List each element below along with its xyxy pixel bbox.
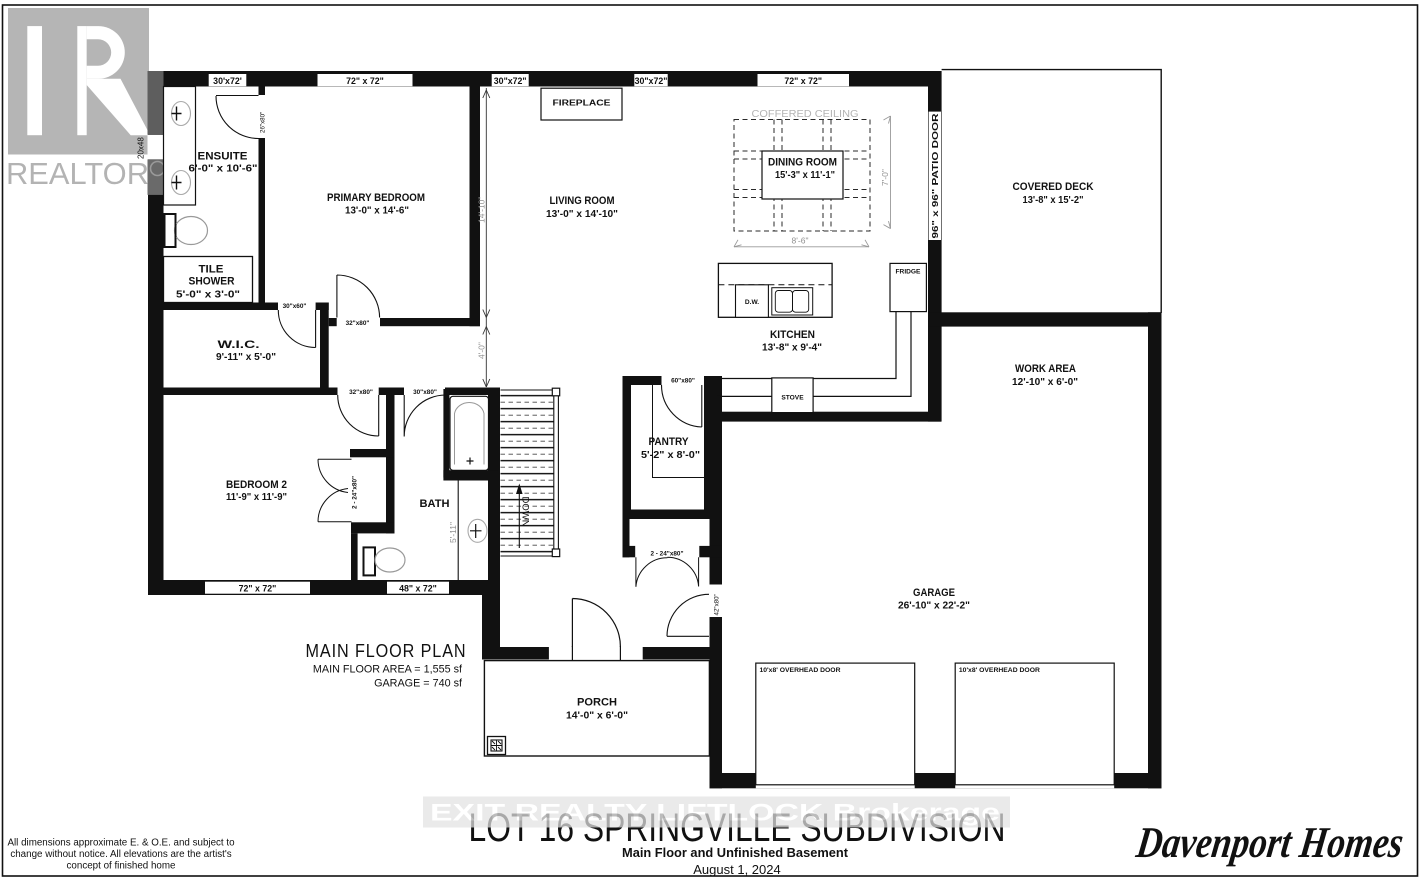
svg-text:13'-8" x 9'-4": 13'-8" x 9'-4" xyxy=(762,342,822,354)
svg-text:14'-10": 14'-10" xyxy=(477,197,487,223)
svg-text:10'x8' OVERHEAD DOOR: 10'x8' OVERHEAD DOOR xyxy=(959,667,1040,674)
svg-text:30"x72": 30"x72" xyxy=(494,76,527,86)
svg-text:COFFERED CEILING: COFFERED CEILING xyxy=(752,109,859,120)
svg-text:2 - 24"x80": 2 - 24"x80" xyxy=(650,550,683,557)
svg-text:72" x 72": 72" x 72" xyxy=(346,76,384,86)
svg-text:Main Floor and Unfinished Base: Main Floor and Unfinished Basement xyxy=(622,845,849,860)
svg-text:9'-11" x 5'-0": 9'-11" x 5'-0" xyxy=(216,351,276,363)
svg-text:5'-2" x 8'-0": 5'-2" x 8'-0" xyxy=(641,449,700,461)
svg-text:STOVE: STOVE xyxy=(781,395,804,402)
svg-text:All dimensions approximate E.: All dimensions approximate E. & O.E. and… xyxy=(7,838,235,849)
svg-text:GARAGE: GARAGE xyxy=(913,587,955,599)
svg-text:WORK AREA: WORK AREA xyxy=(1015,363,1076,375)
svg-text:COVERED DECK: COVERED DECK xyxy=(1013,181,1094,193)
svg-text:30"x80": 30"x80" xyxy=(413,389,437,396)
svg-text:72" x 72": 72" x 72" xyxy=(784,76,822,86)
svg-text:42"x80": 42"x80" xyxy=(713,594,720,615)
svg-text:32"x80": 32"x80" xyxy=(349,389,373,396)
svg-text:26'-10" x 22'-2": 26'-10" x 22'-2" xyxy=(898,600,970,612)
svg-text:60"x80": 60"x80" xyxy=(671,377,695,384)
svg-text:14'-0" x 6'-0": 14'-0" x 6'-0" xyxy=(566,710,628,722)
svg-text:8'-6": 8'-6" xyxy=(792,236,809,246)
svg-text:30'x72': 30'x72' xyxy=(213,76,242,86)
svg-text:PANTRY: PANTRY xyxy=(649,436,690,448)
svg-text:DINING ROOM: DINING ROOM xyxy=(768,157,837,169)
svg-text:GARAGE = 740 sf: GARAGE = 740 sf xyxy=(374,678,463,690)
svg-text:D.W.: D.W. xyxy=(745,299,759,306)
svg-text:August 1, 2024: August 1, 2024 xyxy=(693,862,780,877)
svg-text:13'-0" x 14'-6": 13'-0" x 14'-6" xyxy=(345,205,409,217)
svg-text:48" x 72": 48" x 72" xyxy=(399,583,437,593)
svg-text:W.I.C.: W.I.C. xyxy=(218,339,260,351)
svg-text:FRIDGE: FRIDGE xyxy=(896,269,922,276)
svg-text:KITCHEN: KITCHEN xyxy=(770,329,815,341)
svg-text:SHOWER: SHOWER xyxy=(189,276,235,288)
svg-text:30"x72": 30"x72" xyxy=(635,76,668,86)
svg-text:MAIN FLOOR PLAN: MAIN FLOOR PLAN xyxy=(306,641,467,661)
svg-text:30"x60": 30"x60" xyxy=(283,303,307,310)
svg-text:2 - 24"x80": 2 - 24"x80" xyxy=(352,476,359,509)
svg-text:concept of finished home: concept of finished home xyxy=(67,861,176,872)
svg-text:5'-0" x 3'-0": 5'-0" x 3'-0" xyxy=(176,289,240,301)
svg-text:TILE: TILE xyxy=(199,264,224,276)
svg-text:BATH: BATH xyxy=(420,498,450,510)
svg-text:MAIN FLOOR AREA = 1,555 sf: MAIN FLOOR AREA = 1,555 sf xyxy=(313,664,463,676)
svg-text:13'-8" x 15'-2": 13'-8" x 15'-2" xyxy=(1023,194,1084,206)
svg-text:FIREPLACE: FIREPLACE xyxy=(553,98,611,108)
svg-text:6'-0" x 10'-6": 6'-0" x 10'-6" xyxy=(189,163,258,175)
svg-text:REALTOR: REALTOR xyxy=(6,156,149,191)
svg-text:72" x 72": 72" x 72" xyxy=(239,583,277,593)
svg-text:BEDROOM 2: BEDROOM 2 xyxy=(226,479,287,491)
svg-text:5'-11": 5'-11" xyxy=(448,522,458,543)
svg-text:PORCH: PORCH xyxy=(577,697,617,709)
svg-text:4'-0": 4'-0" xyxy=(477,342,487,359)
svg-text:EXIT REALTY LIFTLOCK Brokerag: EXIT REALTY LIFTLOCK Brokerage xyxy=(430,800,1000,827)
svg-text:DOWN: DOWN xyxy=(520,497,531,527)
svg-text:20x48: 20x48 xyxy=(137,137,146,159)
svg-text:ENSUITE: ENSUITE xyxy=(198,151,248,163)
svg-text:15'-3" x 11'-1": 15'-3" x 11'-1" xyxy=(775,169,835,181)
svg-text:LIVING ROOM: LIVING ROOM xyxy=(550,195,615,207)
svg-text:12'-10" x 6'-0": 12'-10" x 6'-0" xyxy=(1012,376,1078,388)
svg-text:32"x80": 32"x80" xyxy=(346,320,370,327)
svg-text:11'-9" x 11'-9": 11'-9" x 11'-9" xyxy=(226,491,287,503)
svg-text:10'x8' OVERHEAD DOOR: 10'x8' OVERHEAD DOOR xyxy=(760,667,841,674)
svg-text:13'-0" x 14'-10": 13'-0" x 14'-10" xyxy=(546,208,618,220)
svg-text:change without notice. All el: change without notice. All elevations ar… xyxy=(10,849,231,860)
svg-text:96" x 96" PATIO DOOR: 96" x 96" PATIO DOOR xyxy=(930,112,940,238)
svg-text:7'-0": 7'-0" xyxy=(880,169,890,186)
svg-text:PRIMARY BEDROOM: PRIMARY BEDROOM xyxy=(327,192,425,204)
svg-text:26"x80": 26"x80" xyxy=(259,112,266,133)
svg-text:Davenport Homes: Davenport Homes xyxy=(1133,818,1407,867)
